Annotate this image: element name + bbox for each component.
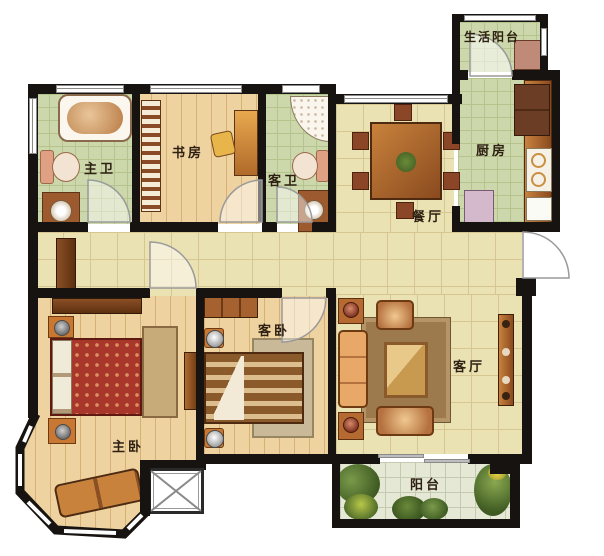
wall-dining-kitchen-bottom <box>452 206 460 232</box>
room-label-guest-bath: 客卫 <box>268 170 300 189</box>
sliding-door-panel-1 <box>378 454 424 458</box>
wall-balcony-left <box>332 462 340 522</box>
room-label-guest-bedroom: 客卧 <box>258 320 290 339</box>
coffee-table <box>384 342 428 398</box>
floor-plan: 生活阳台 主卫 书房 客卫 厨房 餐厅 客卧 客厅 主卧 阳台 <box>0 0 604 556</box>
guest-wardrobe <box>204 296 258 318</box>
bathtub-basin <box>67 102 123 134</box>
hallway-cabinet-horizontal <box>52 298 142 314</box>
plant-center-2 <box>420 498 448 520</box>
sink-guest <box>304 200 324 220</box>
wall-entry-post <box>516 278 536 296</box>
wall-right-living <box>522 296 532 454</box>
wall-dining-kitchen-top <box>452 80 460 144</box>
wall-service-balcony-left <box>452 14 460 78</box>
loveseat <box>376 406 434 436</box>
guest-bed-throw <box>214 356 244 420</box>
room-label-master-bedroom: 主卧 <box>112 436 144 455</box>
lamp-bedside-2 <box>206 430 224 448</box>
wall-living-bottom-left <box>196 454 380 464</box>
desk <box>234 110 258 176</box>
wall-mbath-study <box>132 94 140 222</box>
dining-chair-left-2 <box>352 172 369 190</box>
table-lamp-1 <box>343 302 359 318</box>
dining-chair-right-2 <box>443 172 460 190</box>
sofa-three-seat <box>338 330 368 408</box>
burner-2 <box>531 172 546 187</box>
window-master-bath-top-line <box>56 88 124 89</box>
entry-door-arc <box>523 232 569 278</box>
dishwasher <box>464 190 494 223</box>
wall-balcony-bottom <box>332 519 520 528</box>
hallway-cabinet-vertical <box>56 238 76 290</box>
lamp-nightstand-1 <box>54 320 70 336</box>
room-label-living-room: 客厅 <box>453 356 485 375</box>
wall-study-gbath <box>258 94 266 222</box>
planter-box <box>148 468 204 514</box>
armchair <box>376 300 414 330</box>
burner-1 <box>531 153 546 168</box>
wall-corridor-top-2 <box>130 222 218 232</box>
wall-bedrooms-top-1 <box>28 288 150 298</box>
master-bed-rug <box>142 326 178 418</box>
table-lamp-2 <box>343 417 359 433</box>
window-master-bath-top <box>56 85 124 93</box>
wall-gbed-living <box>328 294 336 456</box>
corridor-floor <box>36 232 522 296</box>
dining-chair-left-1 <box>352 132 369 150</box>
wall-kitchen-right <box>552 70 560 232</box>
room-label-kitchen: 厨房 <box>476 140 508 159</box>
room-label-balcony: 阳台 <box>410 474 442 493</box>
window-guest-bath-top <box>282 85 320 93</box>
refrigerator <box>514 84 550 136</box>
bookshelf <box>141 100 161 212</box>
lamp-nightstand-2 <box>55 424 71 440</box>
window-dining-top-line <box>344 98 448 99</box>
window-master-bath-left-line <box>32 98 33 154</box>
desk-chair <box>210 130 237 158</box>
dining-chair-top <box>394 104 412 121</box>
window-service-balcony-top <box>464 15 536 21</box>
wall-balcony-right <box>510 462 520 524</box>
tv-cabinet-knob-2 <box>502 348 510 356</box>
window-study-top-line <box>150 88 242 89</box>
window-study-top <box>150 85 242 93</box>
tv-cabinet-knob-1 <box>502 320 510 328</box>
master-bed-pillows <box>52 340 72 414</box>
tv-cabinet-knob-4 <box>502 392 510 400</box>
sink-master <box>50 200 72 222</box>
window-master-bath-left <box>29 98 37 154</box>
kitchen-sink <box>526 197 552 221</box>
wall-kitchen-bottom <box>452 222 560 232</box>
wall-gbath-dining <box>328 94 336 232</box>
room-label-study: 书房 <box>172 142 204 161</box>
tv-cabinet-knob-3 <box>502 376 510 384</box>
room-label-dining: 餐厅 <box>412 206 444 225</box>
sliding-door-panel-2 <box>424 459 470 463</box>
wall-corridor-top-3 <box>262 222 277 232</box>
plant-left-2 <box>344 494 378 520</box>
window-dining-top <box>344 95 448 103</box>
wall-bedrooms-top-2 <box>196 288 282 298</box>
toilet-master-bowl <box>52 152 80 182</box>
lamp-bedside-1 <box>206 330 224 348</box>
room-label-service-balcony: 生活阳台 <box>464 28 520 45</box>
dining-centerpiece <box>396 152 416 172</box>
wall-mbed-gbed <box>196 294 204 462</box>
room-label-master-bath: 主卫 <box>84 158 116 177</box>
window-service-balcony-right <box>541 28 547 56</box>
